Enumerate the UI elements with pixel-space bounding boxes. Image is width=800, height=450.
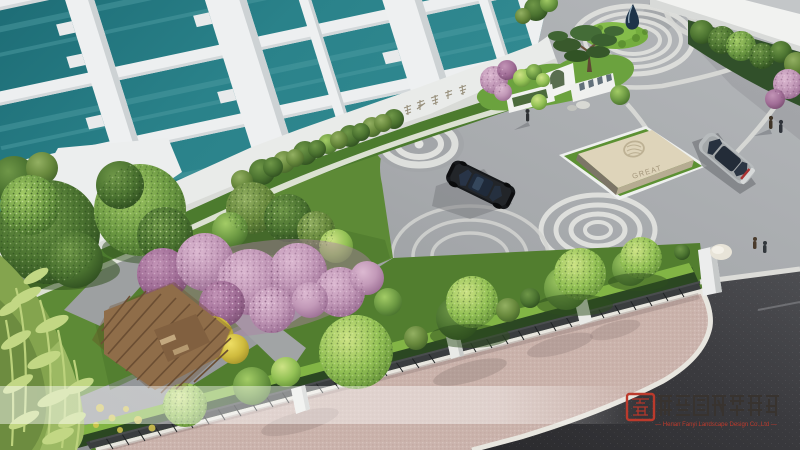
svg-text:— Henan Fanyi Landscape Design: — Henan Fanyi Landscape Design Co.,Ltd — bbox=[655, 422, 777, 428]
